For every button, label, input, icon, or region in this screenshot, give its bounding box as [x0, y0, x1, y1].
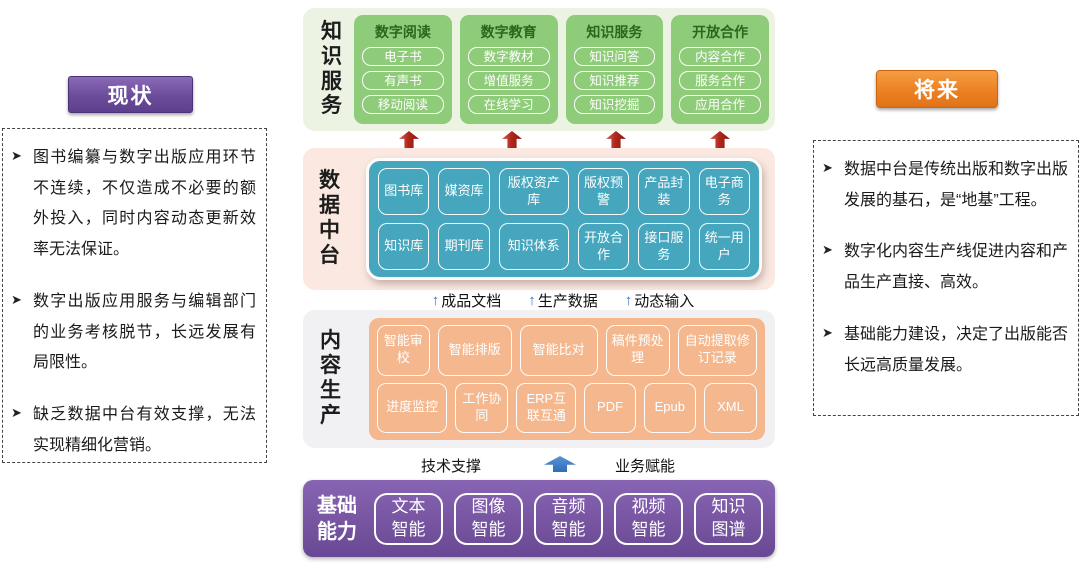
content-production-card: XML [704, 383, 757, 434]
content-production-card: 智能排版 [438, 325, 512, 376]
red-up-arrow-icon [502, 131, 522, 148]
arrow-bullet-icon: ➤ [11, 143, 25, 164]
flow-item: ↑ 成品文档 [432, 290, 502, 311]
capability-pill-text-ai: 文本智能 [374, 493, 443, 545]
knowledge-service-layer: 知识服务 数字阅读 电子书 有声书 移动阅读 数字教育 数字教材 增值服务 在线… [303, 8, 775, 131]
content-production-card: 稿件预处理 [606, 325, 670, 376]
red-up-arrow-icon [399, 131, 419, 148]
card-item: 服务合作 [679, 71, 761, 90]
list-item: ➤ 基础能力建设，决定了出版能否长远高质量发展。 [822, 320, 1068, 381]
data-platform-card: 开放合作 [578, 223, 629, 270]
capability-pill-video-ai: 视频智能 [614, 493, 683, 545]
upward-arrows [303, 131, 775, 148]
data-platform-card: 知识体系 [499, 223, 569, 270]
bullet-text: 数字化内容生产线促进内容和产品生产直接、高效。 [844, 237, 1068, 298]
flow-label: 成品文档 [441, 290, 501, 311]
card-item: 内容合作 [679, 47, 761, 66]
content-production-card: 工作协同 [455, 383, 508, 434]
red-up-arrow-icon [606, 131, 626, 148]
card-digital-education: 数字教育 数字教材 增值服务 在线学习 [460, 15, 558, 124]
card-item: 有声书 [362, 71, 444, 90]
data-platform-row: 知识库 期刊库 知识体系 开放合作 接口服务 统一用户 [378, 223, 750, 270]
content-production-card: 进度监控 [377, 383, 447, 434]
business-enable-label: 业务赋能 [615, 455, 675, 476]
current-status-header: 现状 [68, 76, 193, 113]
data-platform-box: 图书库 媒资库 版权资产库 版权预警 产品封装 电子商务 知识库 期刊库 知识体… [366, 158, 762, 280]
knowledge-service-cards: 数字阅读 电子书 有声书 移动阅读 数字教育 数字教材 增值服务 在线学习 知识… [354, 15, 769, 124]
arrow-bullet-icon: ➤ [822, 320, 836, 341]
card-item: 知识问答 [574, 47, 656, 66]
card-item: 知识挖掘 [574, 95, 656, 114]
list-item: ➤ 缺乏数据中台有效支撑，无法实现精细化营销。 [11, 400, 256, 461]
data-platform-card: 媒资库 [438, 168, 489, 215]
flow-label: 生产数据 [538, 290, 598, 311]
list-item: ➤ 数字出版应用服务与编辑部门的业务考核脱节，长远发展有局限性。 [11, 287, 256, 379]
list-item: ➤ 图书编纂与数字出版应用环节不连续，不仅造成不必要的额外投入，同时内容动态更新… [11, 143, 256, 266]
bullet-text: 缺乏数据中台有效支撑，无法实现精细化营销。 [33, 400, 256, 461]
card-item: 在线学习 [468, 95, 550, 114]
bullet-text: 数字出版应用服务与编辑部门的业务考核脱节，长远发展有局限性。 [33, 287, 256, 379]
current-status-box: ➤ 图书编纂与数字出版应用环节不连续，不仅造成不必要的额外投入，同时内容动态更新… [2, 128, 267, 463]
card-knowledge-service: 知识服务 知识问答 知识推荐 知识挖掘 [566, 15, 664, 124]
card-open-cooperation: 开放合作 内容合作 服务合作 应用合作 [671, 15, 769, 124]
content-production-card: 智能审校 [377, 325, 430, 376]
content-production-row: 进度监控 工作协同 ERP互联互通 PDF Epub XML [377, 383, 757, 434]
diagram-canvas: 现状 ➤ 图书编纂与数字出版应用环节不连续，不仅造成不必要的额外投入，同时内容动… [0, 0, 1080, 568]
bullet-text: 基础能力建设，决定了出版能否长远高质量发展。 [844, 320, 1068, 381]
content-production-row: 智能审校 智能排版 智能比对 稿件预处理 自动提取修订记录 [377, 325, 757, 376]
data-platform-card: 图书库 [378, 168, 429, 215]
card-item: 数字教材 [468, 47, 550, 66]
content-production-layer: 内容生产 智能审校 智能排版 智能比对 稿件预处理 自动提取修订记录 进度监控 … [303, 310, 775, 448]
flow-item: ↑ 动态输入 [625, 290, 695, 311]
blue-up-arrow-icon: ↑ [625, 292, 633, 309]
blue-up-arrow-icon: ↑ [528, 292, 536, 309]
arrow-bullet-icon: ➤ [11, 400, 25, 421]
arrow-bullet-icon: ➤ [822, 237, 836, 258]
support-row: 技术支撑 业务赋能 [303, 448, 775, 480]
layer-label-knowledge-service: 知识服务 [321, 20, 344, 119]
future-header: 将来 [876, 70, 998, 108]
card-item: 电子书 [362, 47, 444, 66]
card-item: 应用合作 [679, 95, 761, 114]
card-digital-reading: 数字阅读 电子书 有声书 移动阅读 [354, 15, 452, 124]
flow-item: ↑ 生产数据 [528, 290, 598, 311]
content-production-card: PDF [584, 383, 635, 434]
future-box: ➤ 数据中台是传统出版和数字出版发展的基石，是“地基”工程。 ➤ 数字化内容生产… [813, 140, 1079, 416]
capability-pill-audio-ai: 音频智能 [534, 493, 603, 545]
arrow-bullet-icon: ➤ [11, 287, 25, 308]
content-production-box: 智能审校 智能排版 智能比对 稿件预处理 自动提取修订记录 进度监控 工作协同 … [369, 318, 765, 440]
data-platform-layer: 数据中台 图书库 媒资库 版权资产库 版权预警 产品封装 电子商务 知识库 期刊… [303, 148, 775, 290]
red-up-arrow-icon [710, 131, 730, 148]
card-item: 知识推荐 [574, 71, 656, 90]
layer-label-content-production: 内容生产 [320, 329, 343, 428]
card-title: 开放合作 [677, 22, 763, 42]
bullet-text: 图书编纂与数字出版应用环节不连续，不仅造成不必要的额外投入，同时内容动态更新效率… [33, 143, 256, 266]
list-item: ➤ 数字化内容生产线促进内容和产品生产直接、高效。 [822, 237, 1068, 298]
blue-up-arrow-icon: ↑ [432, 292, 440, 309]
data-platform-row: 图书库 媒资库 版权资产库 版权预警 产品封装 电子商务 [378, 168, 750, 215]
data-platform-card: 产品封装 [638, 168, 689, 215]
layer-label-basic-capability: 基础能力 [317, 493, 363, 545]
arrow-bullet-icon: ➤ [822, 155, 836, 176]
layer-label-data-platform: 数据中台 [319, 169, 342, 268]
card-item: 移动阅读 [362, 95, 444, 114]
data-platform-card: 统一用户 [699, 223, 750, 270]
content-production-card: 智能比对 [520, 325, 598, 376]
content-production-card: ERP互联互通 [516, 383, 576, 434]
data-platform-card: 期刊库 [438, 223, 489, 270]
content-production-card: 自动提取修订记录 [678, 325, 757, 376]
flow-label: 动态输入 [634, 290, 694, 311]
data-platform-card: 电子商务 [699, 168, 750, 215]
architecture-stack: 知识服务 数字阅读 电子书 有声书 移动阅读 数字教育 数字教材 增值服务 在线… [303, 8, 775, 557]
data-flow-labels: ↑ 成品文档 ↑ 生产数据 ↑ 动态输入 [303, 290, 775, 310]
basic-capability-layer: 基础能力 文本智能 图像智能 音频智能 视频智能 知识图谱 [303, 480, 775, 557]
content-production-card: Epub [644, 383, 696, 434]
bullet-text: 数据中台是传统出版和数字出版发展的基石，是“地基”工程。 [844, 155, 1068, 216]
card-title: 数字教育 [466, 22, 552, 42]
capability-pill-knowledge-graph: 知识图谱 [694, 493, 763, 545]
card-title: 知识服务 [572, 22, 658, 42]
data-platform-card: 版权资产库 [499, 168, 569, 215]
tech-support-label: 技术支撑 [421, 455, 481, 476]
data-platform-card: 版权预警 [578, 168, 629, 215]
list-item: ➤ 数据中台是传统出版和数字出版发展的基石，是“地基”工程。 [822, 155, 1068, 216]
blue-fat-up-arrow-icon [544, 456, 576, 472]
capability-pill-image-ai: 图像智能 [454, 493, 523, 545]
data-platform-card: 知识库 [378, 223, 429, 270]
card-item: 增值服务 [468, 71, 550, 90]
data-platform-card: 接口服务 [638, 223, 689, 270]
card-title: 数字阅读 [360, 22, 446, 42]
